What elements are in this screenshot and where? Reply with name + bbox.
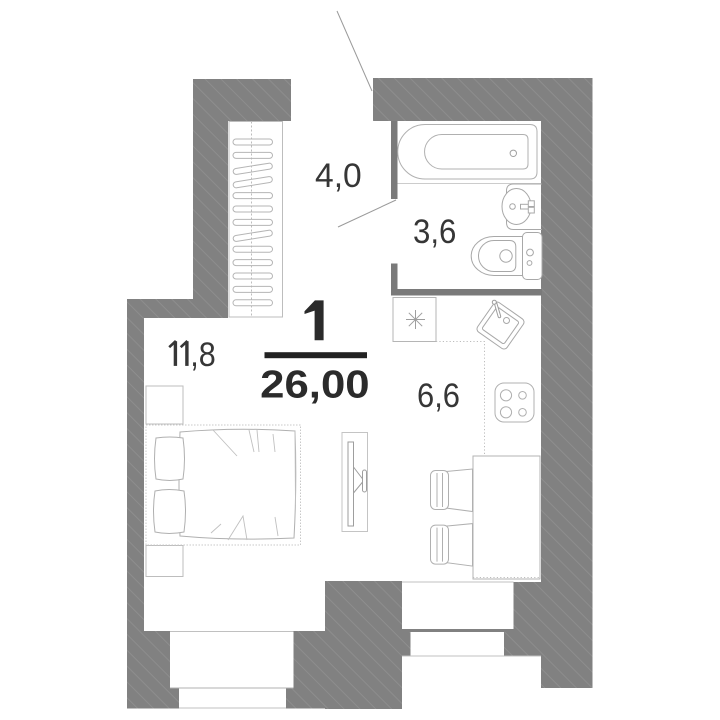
svg-text:26,00: 26,00	[260, 364, 369, 407]
svg-text:3,6: 3,6	[413, 213, 456, 251]
svg-text:4,0: 4,0	[315, 157, 362, 195]
svg-text:,8: ,8	[190, 336, 216, 374]
svg-text:6,6: 6,6	[417, 377, 460, 415]
